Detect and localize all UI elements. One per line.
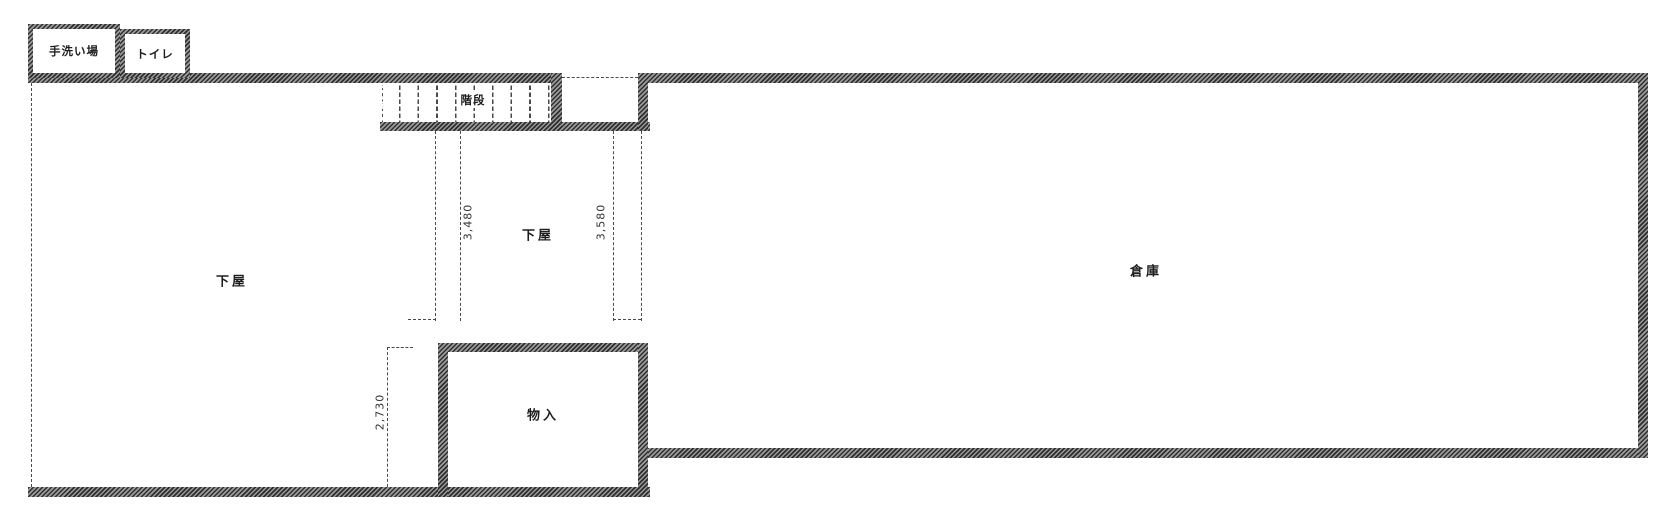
wall-storage-left — [438, 343, 448, 497]
toilet-room: トイレ — [120, 29, 190, 78]
hand-wash-room-floor: 手洗い場 — [33, 29, 115, 73]
wall-storage-right-warehouse-left-lower — [638, 343, 648, 497]
storage-label: 物入 — [527, 405, 559, 424]
center-left-end-tick — [408, 319, 436, 320]
left-room-left-boundary-dashed — [31, 83, 32, 487]
lean-to-left-label: 下屋 — [216, 271, 248, 290]
landing-top-dashed — [562, 77, 638, 78]
toilet-room-floor: トイレ — [125, 34, 185, 73]
wall-bottom-warehouse — [638, 448, 1648, 458]
wall-bottom-left-section — [28, 487, 650, 497]
wall-warehouse-left-upper — [638, 73, 648, 131]
wall-right-warehouse — [1638, 73, 1648, 458]
center-right-end-tick — [613, 319, 641, 320]
center-left-extension-line-1 — [435, 131, 436, 321]
toilet-label: トイレ — [136, 46, 174, 62]
dimension-lower-left: 2,730 — [374, 394, 387, 431]
hand-wash-label: 手洗い場 — [49, 43, 99, 59]
dimension-center-right: 3,580 — [595, 204, 608, 241]
wall-top-warehouse — [638, 73, 1648, 83]
wall-stairs-bottom — [380, 122, 650, 131]
lower-left-dimension-tick — [387, 347, 413, 348]
center-right-extension-line-1 — [613, 131, 614, 321]
dimension-center-left: 3,480 — [462, 204, 475, 241]
wall-storage-top — [438, 343, 648, 352]
lower-left-dimension-line — [387, 347, 388, 487]
floor-plan-canvas: 手洗い場 トイレ 階段 下屋 下屋 物入 倉庫 3,480 3,580 2,73… — [0, 0, 1668, 529]
wall-stairs-right — [551, 73, 562, 131]
warehouse-label: 倉庫 — [1130, 261, 1162, 280]
lean-to-center-label: 下屋 — [522, 225, 554, 244]
hand-wash-room: 手洗い場 — [28, 24, 120, 78]
stairs-label: 階段 — [459, 92, 488, 108]
center-right-extension-line-2 — [641, 131, 642, 321]
